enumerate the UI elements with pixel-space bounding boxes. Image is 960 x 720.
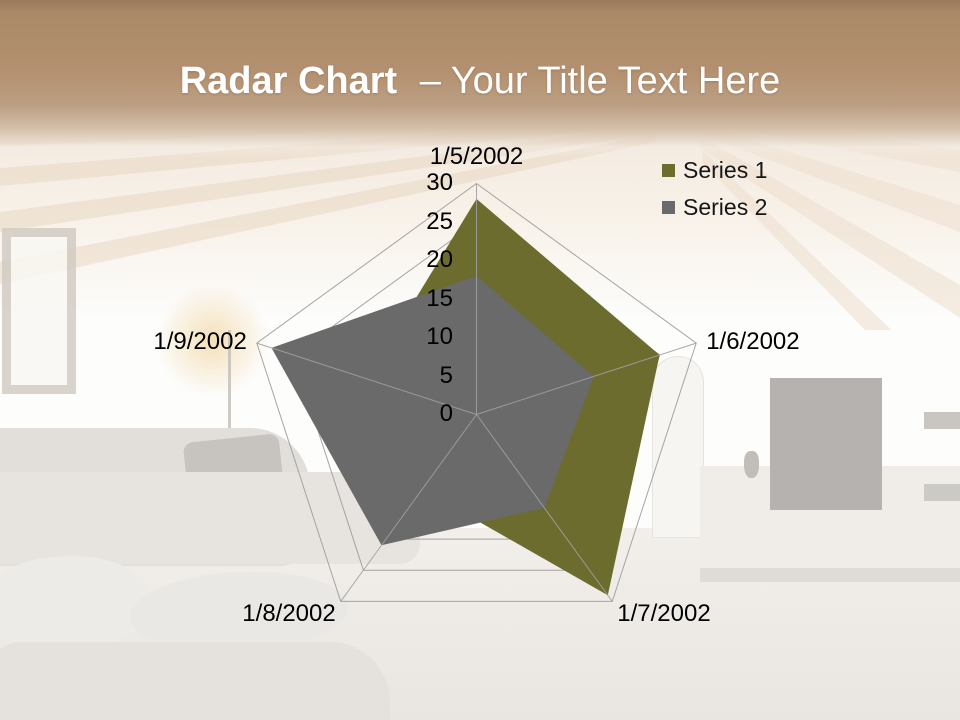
tick-label-10: 10: [426, 323, 453, 351]
radar-chart: 1/5/20021/6/20021/7/20021/8/20021/9/2002…: [0, 0, 960, 720]
category-label-4: 1/9/2002: [153, 328, 246, 356]
radar-plot: [0, 0, 960, 720]
slide-canvas: Radar Chart – Your Title Text Here 1/5/2…: [0, 0, 960, 720]
tick-label-30: 30: [426, 169, 453, 197]
category-label-3: 1/8/2002: [242, 600, 335, 628]
category-label-1: 1/6/2002: [706, 328, 799, 356]
tick-label-20: 20: [426, 246, 453, 274]
legend-label: Series 1: [683, 157, 767, 183]
tick-label-15: 15: [426, 285, 453, 313]
legend-swatch-icon: [662, 201, 675, 214]
legend-item-2: Series 2: [662, 194, 767, 220]
chart-legend: Series 1Series 2: [662, 157, 767, 231]
tick-label-0: 0: [440, 400, 453, 428]
tick-label-25: 25: [426, 208, 453, 236]
legend-label: Series 2: [683, 194, 767, 220]
category-label-0: 1/5/2002: [430, 143, 523, 171]
tick-label-5: 5: [440, 362, 453, 390]
legend-swatch-icon: [662, 164, 675, 177]
category-label-2: 1/7/2002: [617, 600, 710, 628]
legend-item-1: Series 1: [662, 157, 767, 183]
